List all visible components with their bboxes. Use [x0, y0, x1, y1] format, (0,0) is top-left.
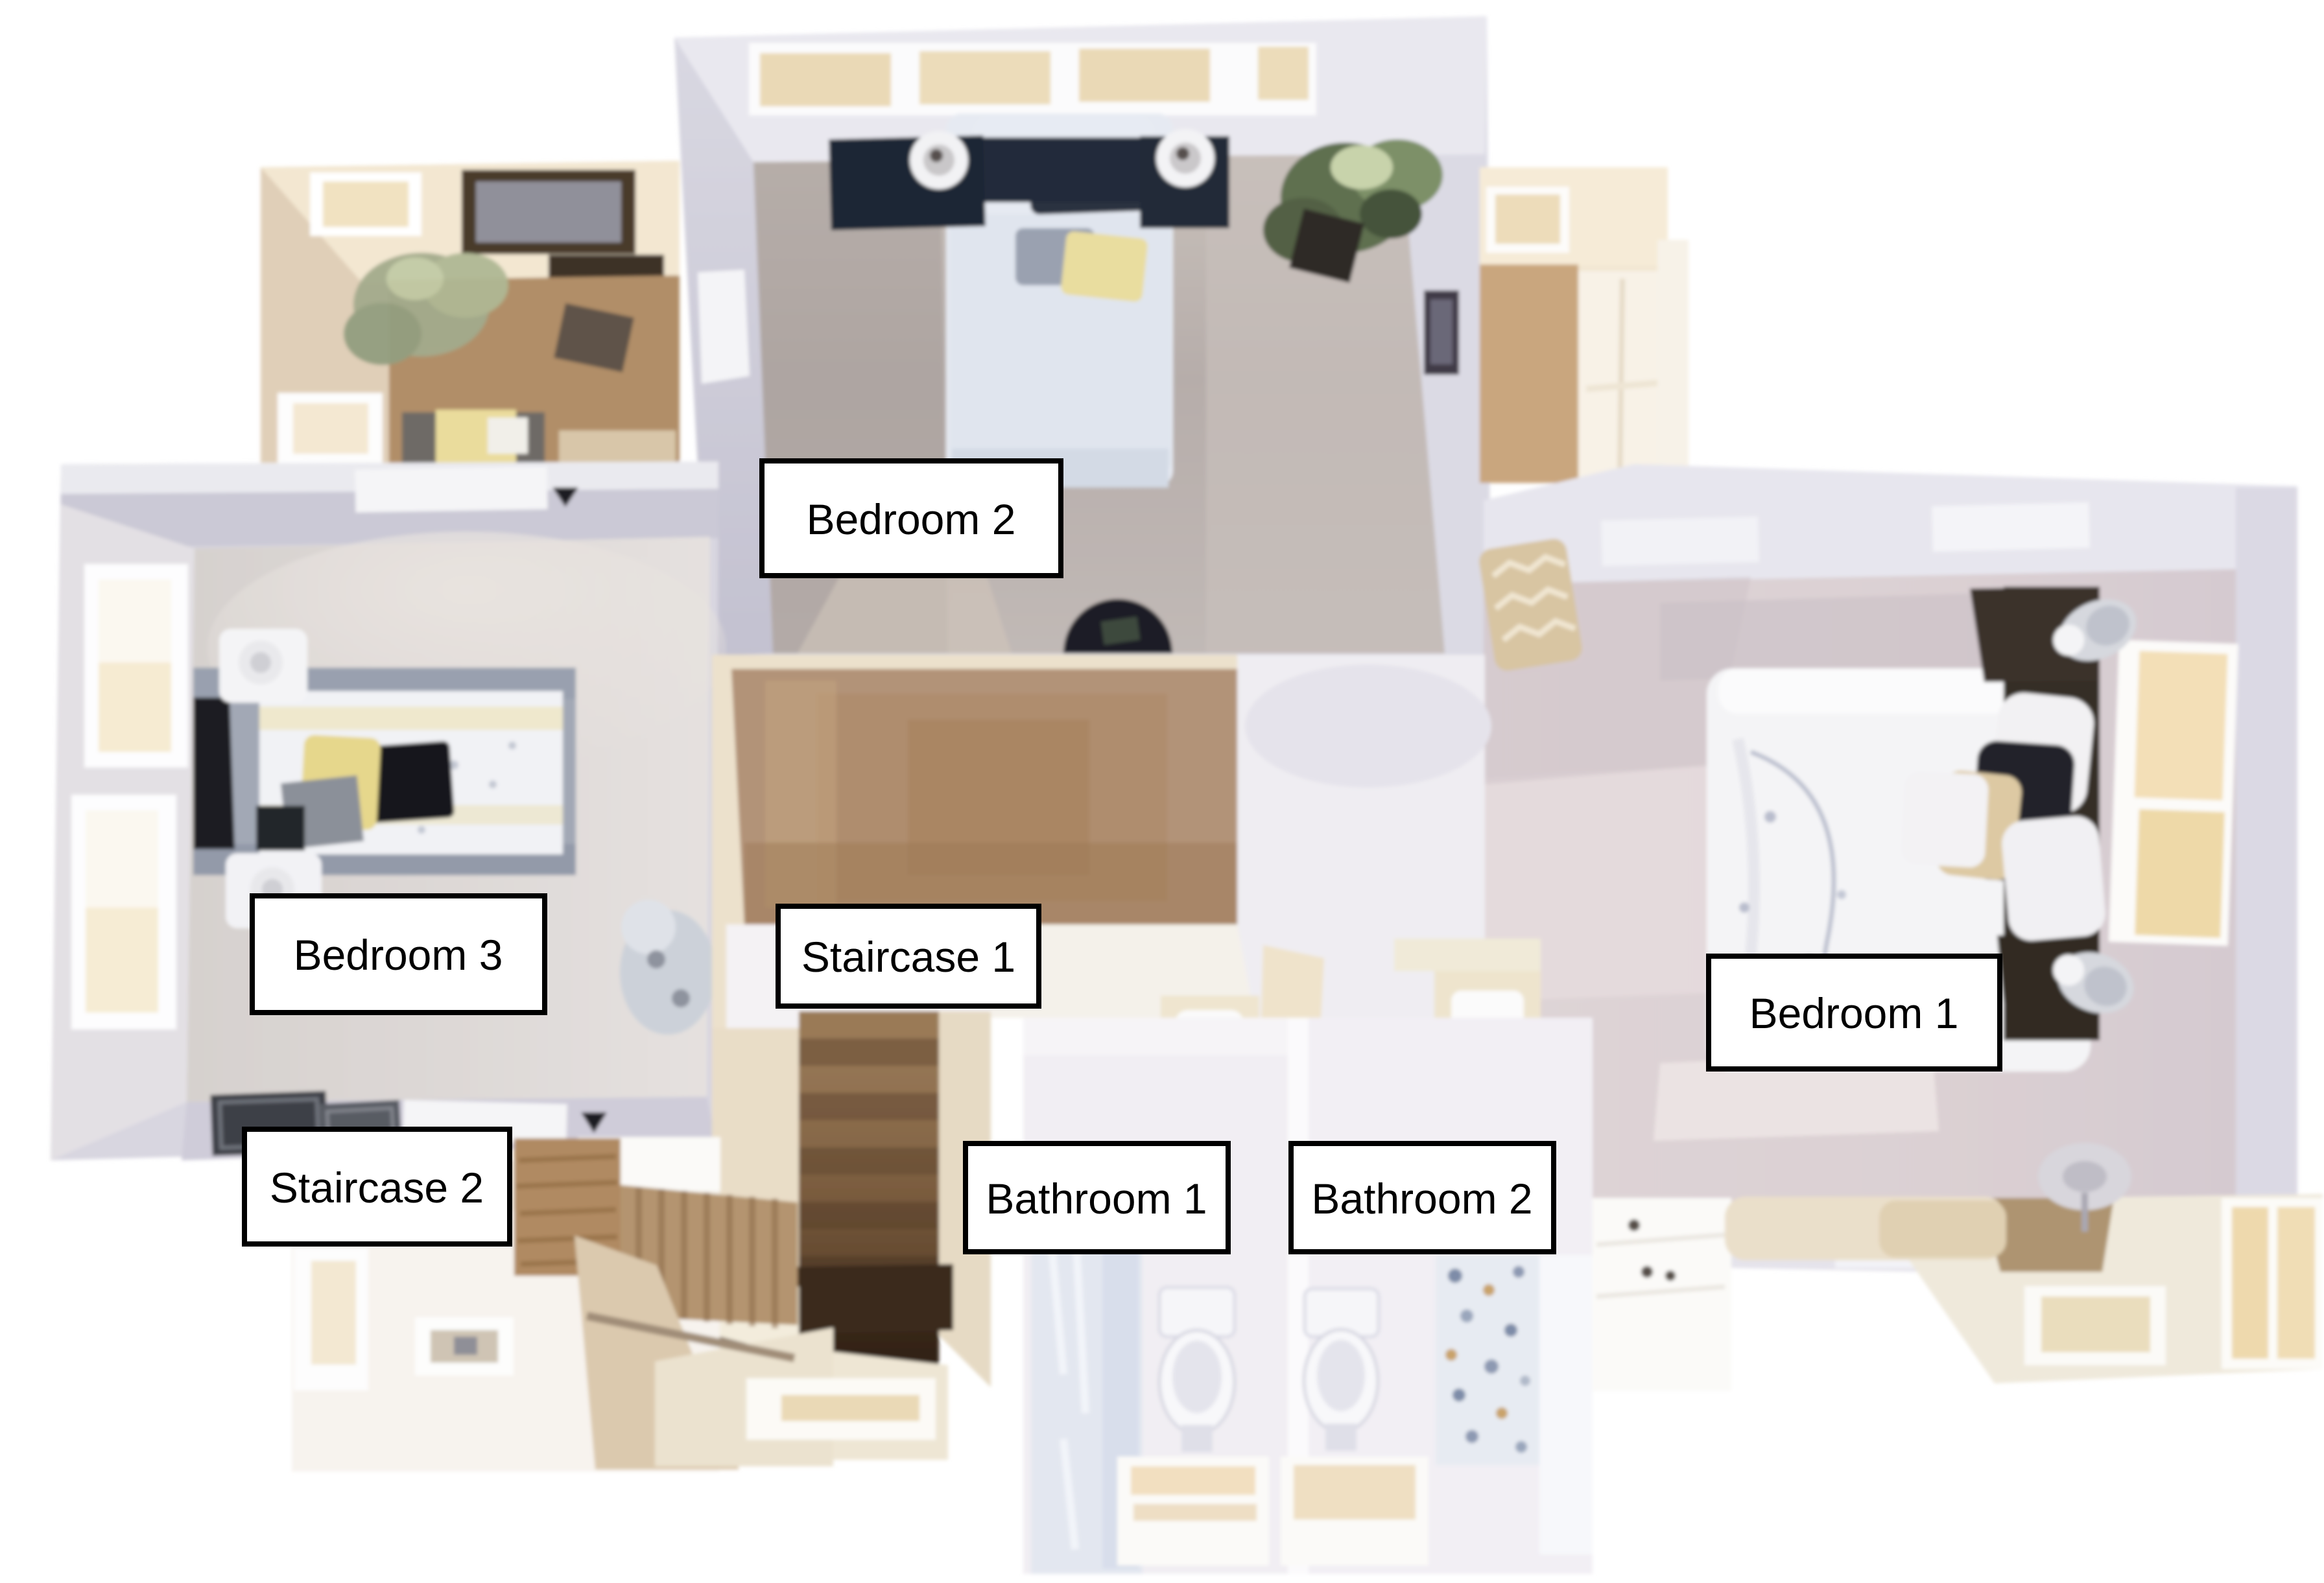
svg-text:Bedroom 1: Bedroom 1 [1749, 989, 1959, 1037]
svg-text:Staircase 2: Staircase 2 [270, 1164, 484, 1212]
svg-text:Bedroom 3: Bedroom 3 [294, 931, 503, 979]
svg-text:Bedroom 2: Bedroom 2 [807, 495, 1016, 543]
svg-text:Staircase 1: Staircase 1 [801, 933, 1015, 981]
svg-text:Bathroom 1: Bathroom 1 [986, 1175, 1207, 1223]
svg-text:Bathroom 2: Bathroom 2 [1311, 1175, 1532, 1223]
